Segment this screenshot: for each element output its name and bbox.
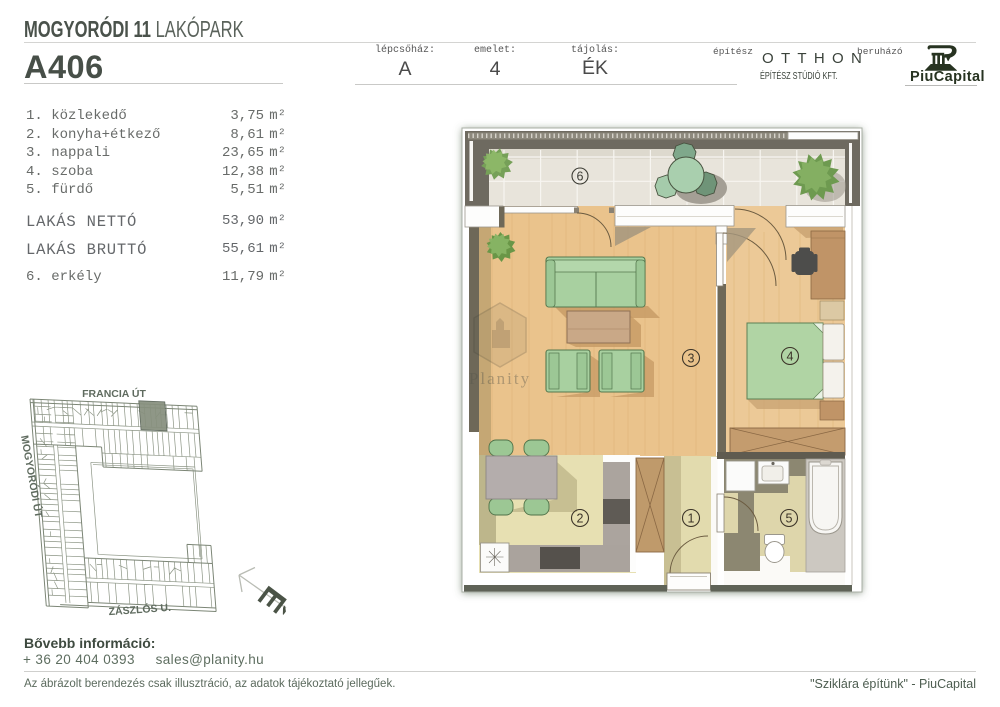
svg-text:5: 5: [786, 512, 793, 526]
svg-text:6: 6: [577, 170, 584, 184]
svg-text:FRANCIA ÚT: FRANCIA ÚT: [82, 387, 146, 400]
svg-text:1: 1: [688, 512, 695, 526]
svg-text:3: 3: [688, 352, 695, 366]
svg-text:MOGYORÓDI ÚT: MOGYORÓDI ÚT: [18, 434, 45, 519]
svg-text:4: 4: [787, 350, 794, 364]
svg-text:É: É: [251, 580, 294, 620]
svg-text:2: 2: [577, 512, 584, 526]
svg-text:Planity: Planity: [469, 369, 531, 388]
